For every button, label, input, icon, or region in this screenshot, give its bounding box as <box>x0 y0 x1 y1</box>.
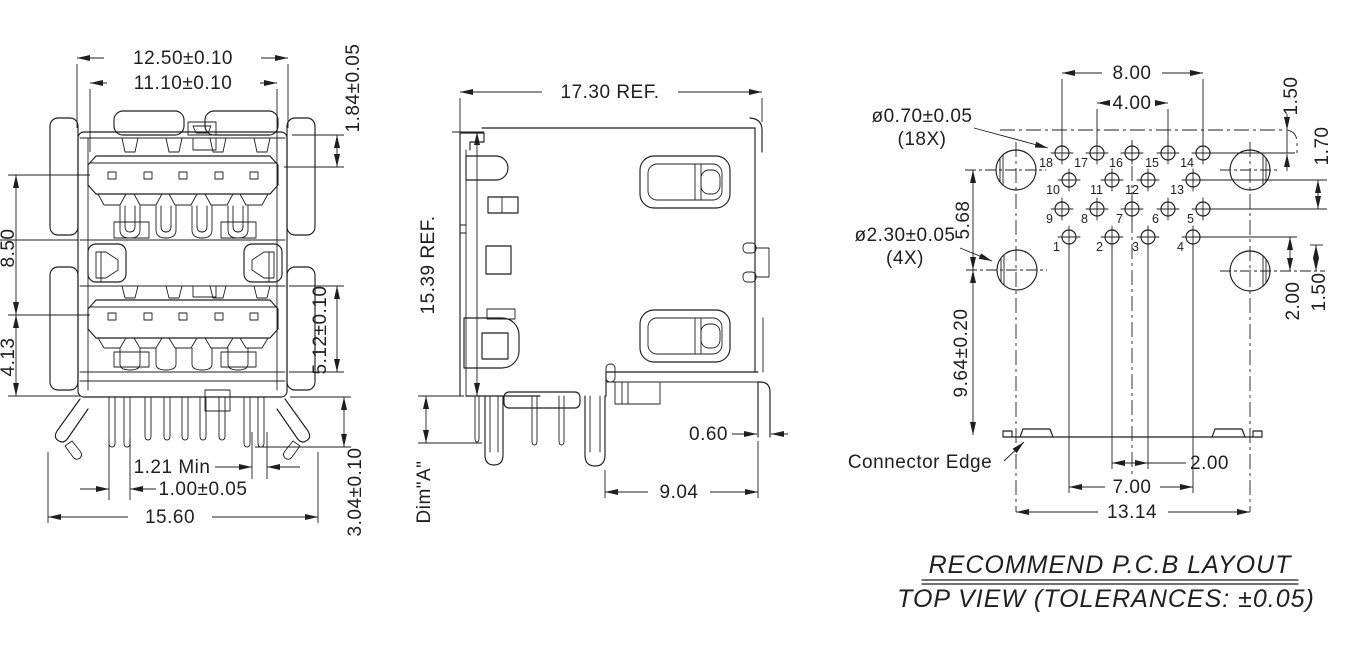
pin-label: 18 <box>1039 156 1053 170</box>
pcb-pin: 16 <box>1109 142 1143 170</box>
dim-edge-gap: 0.60 <box>689 424 728 445</box>
front-foot-right <box>277 399 310 442</box>
front-shell <box>50 111 315 397</box>
pin-label: 3 <box>1132 240 1139 254</box>
pcb-pin: 17 <box>1074 142 1108 170</box>
dim-leg-span: 9.04 <box>660 482 699 503</box>
pcb-large-holes <box>996 150 1270 291</box>
pin-label: 16 <box>1109 156 1123 170</box>
front-pins <box>55 390 309 459</box>
front-view: 12.50±0.10 11.10±0.10 1.84±0.05 8.50 4.1… <box>0 44 366 537</box>
front-upper-port <box>88 138 278 238</box>
pin-label: 13 <box>1170 183 1184 197</box>
dim-lower-span: 4.13 <box>0 338 19 377</box>
callout-large-hole-qty: (4X) <box>886 248 924 269</box>
drawing-title-line1: RECOMMEND P.C.B LAYOUT <box>929 551 1293 579</box>
pcb-pin: 1 <box>1053 226 1080 254</box>
dim-edge-to-row: 1.50 <box>1281 77 1302 116</box>
dim-depth-ref: 17.30 REF. <box>561 82 660 103</box>
pcb-pin: 11 <box>1090 169 1123 197</box>
pcb-pin: 5 <box>1187 198 1214 226</box>
pin-label: 12 <box>1125 183 1139 197</box>
dim-pin-width: 1.00±0.05 <box>159 479 248 500</box>
dim-lower-port-height: 5.12±0.10 <box>310 286 331 375</box>
front-dimensions: 12.50±0.10 11.10±0.10 1.84±0.05 8.50 4.1… <box>0 44 366 537</box>
pcb-pin: 4 <box>1177 226 1204 254</box>
front-latch-band <box>0 240 285 286</box>
pcb-pin: 8 <box>1081 198 1108 226</box>
engineering-drawing: 12.50±0.10 11.10±0.10 1.84±0.05 8.50 4.1… <box>0 0 1364 646</box>
callout-small-hole-dia: ø0.70±0.05 <box>872 106 973 127</box>
dim-pin-gap: 1.21 Min <box>134 457 211 478</box>
pin-label: 6 <box>1152 212 1159 226</box>
front-foot-left <box>55 399 88 442</box>
pin-label: 10 <box>1046 183 1060 197</box>
pcb-pin: 9 <box>1046 198 1073 226</box>
label-connector-edge: Connector Edge <box>848 452 992 473</box>
pcb-dimensions: 8.00 4.00 1.50 1.70 2.00 1.50 5.68 <box>951 63 1333 523</box>
pin-label: 17 <box>1074 156 1088 170</box>
dim-row-width: 8.00 <box>1113 63 1152 84</box>
pcb-pin: 13 <box>1170 169 1204 197</box>
pcb-pin: 15 <box>1145 142 1179 170</box>
dim-row-inner: 4.00 <box>1113 93 1152 114</box>
pcb-layout-view: 18 17 16 15 14 10 11 12 13 9 8 7 6 5 1 2… <box>848 63 1333 523</box>
dim-hole-pitch-h: 13.14 <box>1107 502 1157 523</box>
callout-small-hole-qty: (18X) <box>898 129 947 150</box>
pcb-pin: 14 <box>1180 142 1214 170</box>
pin-label: 2 <box>1096 240 1103 254</box>
engineering-drawing-page: 12.50±0.10 11.10±0.10 1.84±0.05 8.50 4.1… <box>0 0 1364 646</box>
dim-hole-pitch-v: 5.68 <box>953 201 974 240</box>
title-block: RECOMMEND P.C.B LAYOUT TOP VIEW (TOLERAN… <box>897 551 1315 613</box>
pcb-pin-grid: 18 17 16 15 14 10 11 12 13 9 8 7 6 5 1 2… <box>1039 142 1214 254</box>
pin-label: 1 <box>1053 240 1060 254</box>
dim-inner-width: 11.10±0.10 <box>134 73 233 94</box>
pcb-centerlines <box>965 130 1325 512</box>
dim-tongue-offset: 1.84±0.05 <box>343 44 364 133</box>
dim-pin-center: 2.00 <box>1190 453 1229 474</box>
pcb-pin: 3 <box>1132 226 1159 254</box>
side-view: 17.30 REF. 15.39 REF. Dim"A" 0.60 9.04 <box>414 82 788 523</box>
dim-pin-outer: 7.00 <box>1113 477 1152 498</box>
pcb-board-edge <box>1003 429 1262 437</box>
pin-label: 7 <box>1116 212 1123 226</box>
dim-port-span: 8.50 <box>0 229 19 268</box>
dim-pin-length: 3.04±0.10 <box>345 448 366 537</box>
side-latch-upper <box>640 156 730 208</box>
pcb-pin: 2 <box>1096 226 1123 254</box>
pin-label: 8 <box>1081 212 1088 226</box>
dim-outer-width: 12.50±0.10 <box>133 48 233 69</box>
callout-large-hole-dia: ø2.30±0.05 <box>855 225 956 246</box>
dim-row-gap: 1.70 <box>1312 127 1333 166</box>
dim-a-label: Dim"A" <box>414 461 435 524</box>
pcb-pin: 10 <box>1046 169 1080 197</box>
pin-label: 4 <box>1177 240 1184 254</box>
pin-label: 11 <box>1090 183 1103 197</box>
pin-label: 5 <box>1187 212 1194 226</box>
pin-label: 14 <box>1180 156 1194 170</box>
pin-label: 15 <box>1145 156 1159 170</box>
side-body <box>460 118 770 466</box>
side-latch-lower <box>640 310 730 362</box>
dim-hole-to-edge: 9.64±0.20 <box>951 309 972 398</box>
dim-overall-width: 15.60 <box>145 507 195 528</box>
pcb-pin: 18 <box>1039 142 1073 170</box>
dim-hole-offset: 2.00 <box>1283 282 1304 321</box>
dim-height-ref: 15.39 REF. <box>418 216 439 315</box>
front-lower-port <box>80 286 285 381</box>
pin-label: 9 <box>1046 212 1053 226</box>
pcb-pin: 12 <box>1125 169 1159 197</box>
pcb-pin: 6 <box>1152 198 1179 226</box>
pcb-pin: 7 <box>1116 198 1143 226</box>
drawing-title-line2: TOP VIEW (TOLERANCES: ±0.05) <box>897 585 1315 613</box>
dim-hole-offset2: 1.50 <box>1309 273 1330 312</box>
